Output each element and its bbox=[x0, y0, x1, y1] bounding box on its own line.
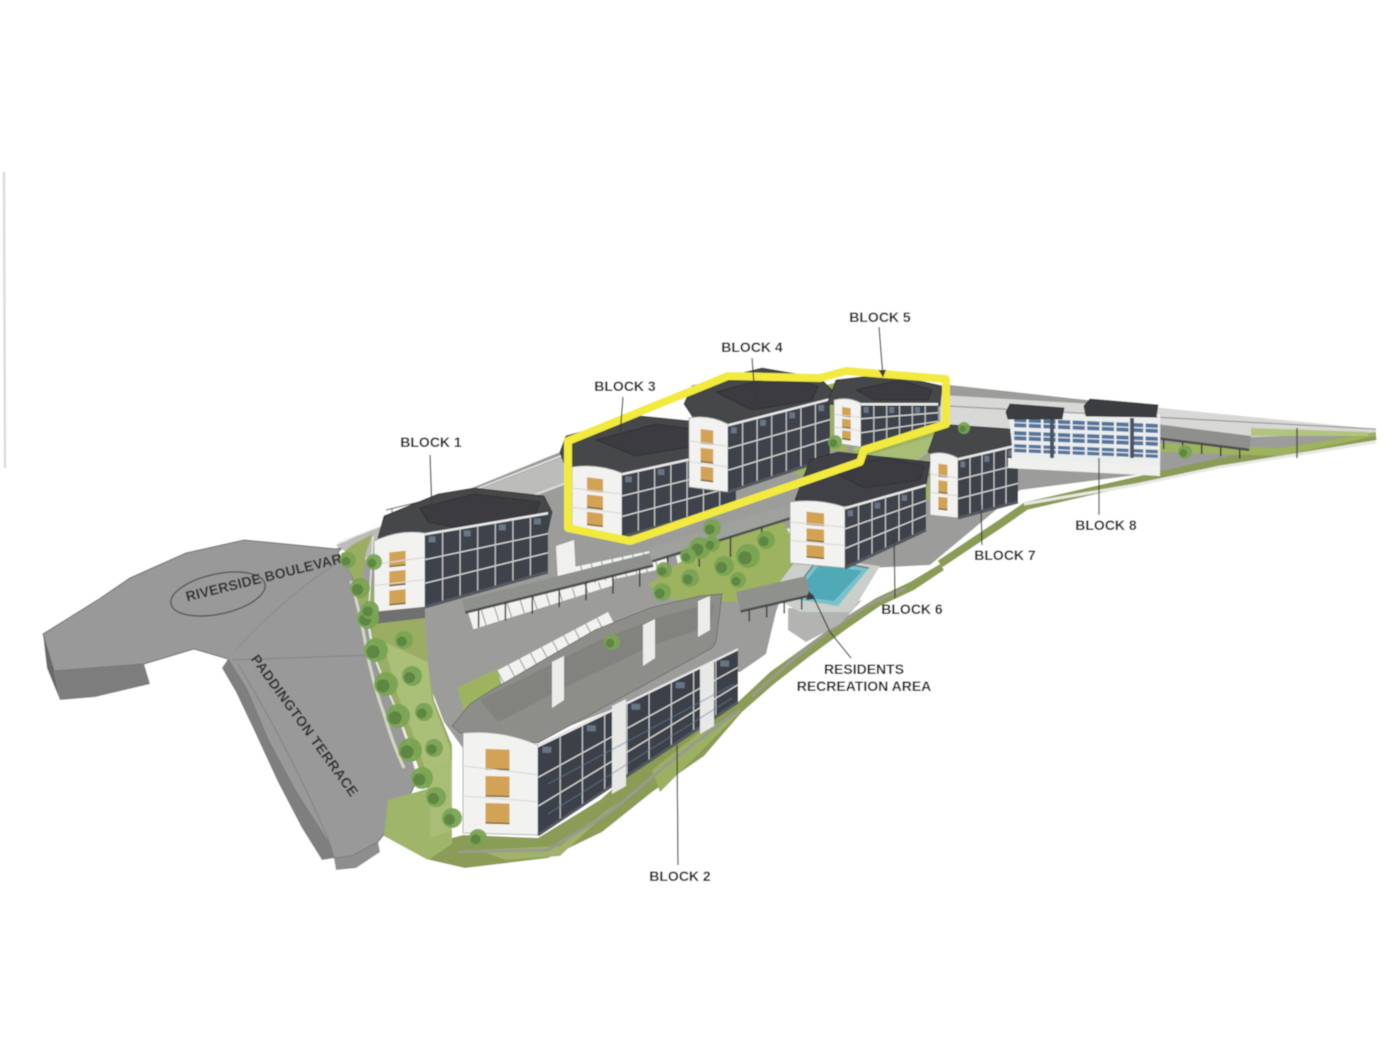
svg-text:BLOCK 4: BLOCK 4 bbox=[721, 339, 783, 355]
svg-text:BLOCK 5: BLOCK 5 bbox=[849, 309, 911, 325]
svg-text:BLOCK 8: BLOCK 8 bbox=[1075, 517, 1137, 533]
svg-text:BLOCK 7: BLOCK 7 bbox=[974, 547, 1036, 563]
svg-text:BLOCK 1: BLOCK 1 bbox=[400, 434, 462, 450]
svg-text:RESIDENTS: RESIDENTS bbox=[824, 661, 904, 677]
svg-text:BLOCK 3: BLOCK 3 bbox=[594, 378, 656, 394]
svg-text:BLOCK 6: BLOCK 6 bbox=[881, 601, 943, 617]
svg-text:BLOCK 2: BLOCK 2 bbox=[649, 868, 711, 884]
svg-text:RECREATION AREA: RECREATION AREA bbox=[797, 678, 932, 694]
